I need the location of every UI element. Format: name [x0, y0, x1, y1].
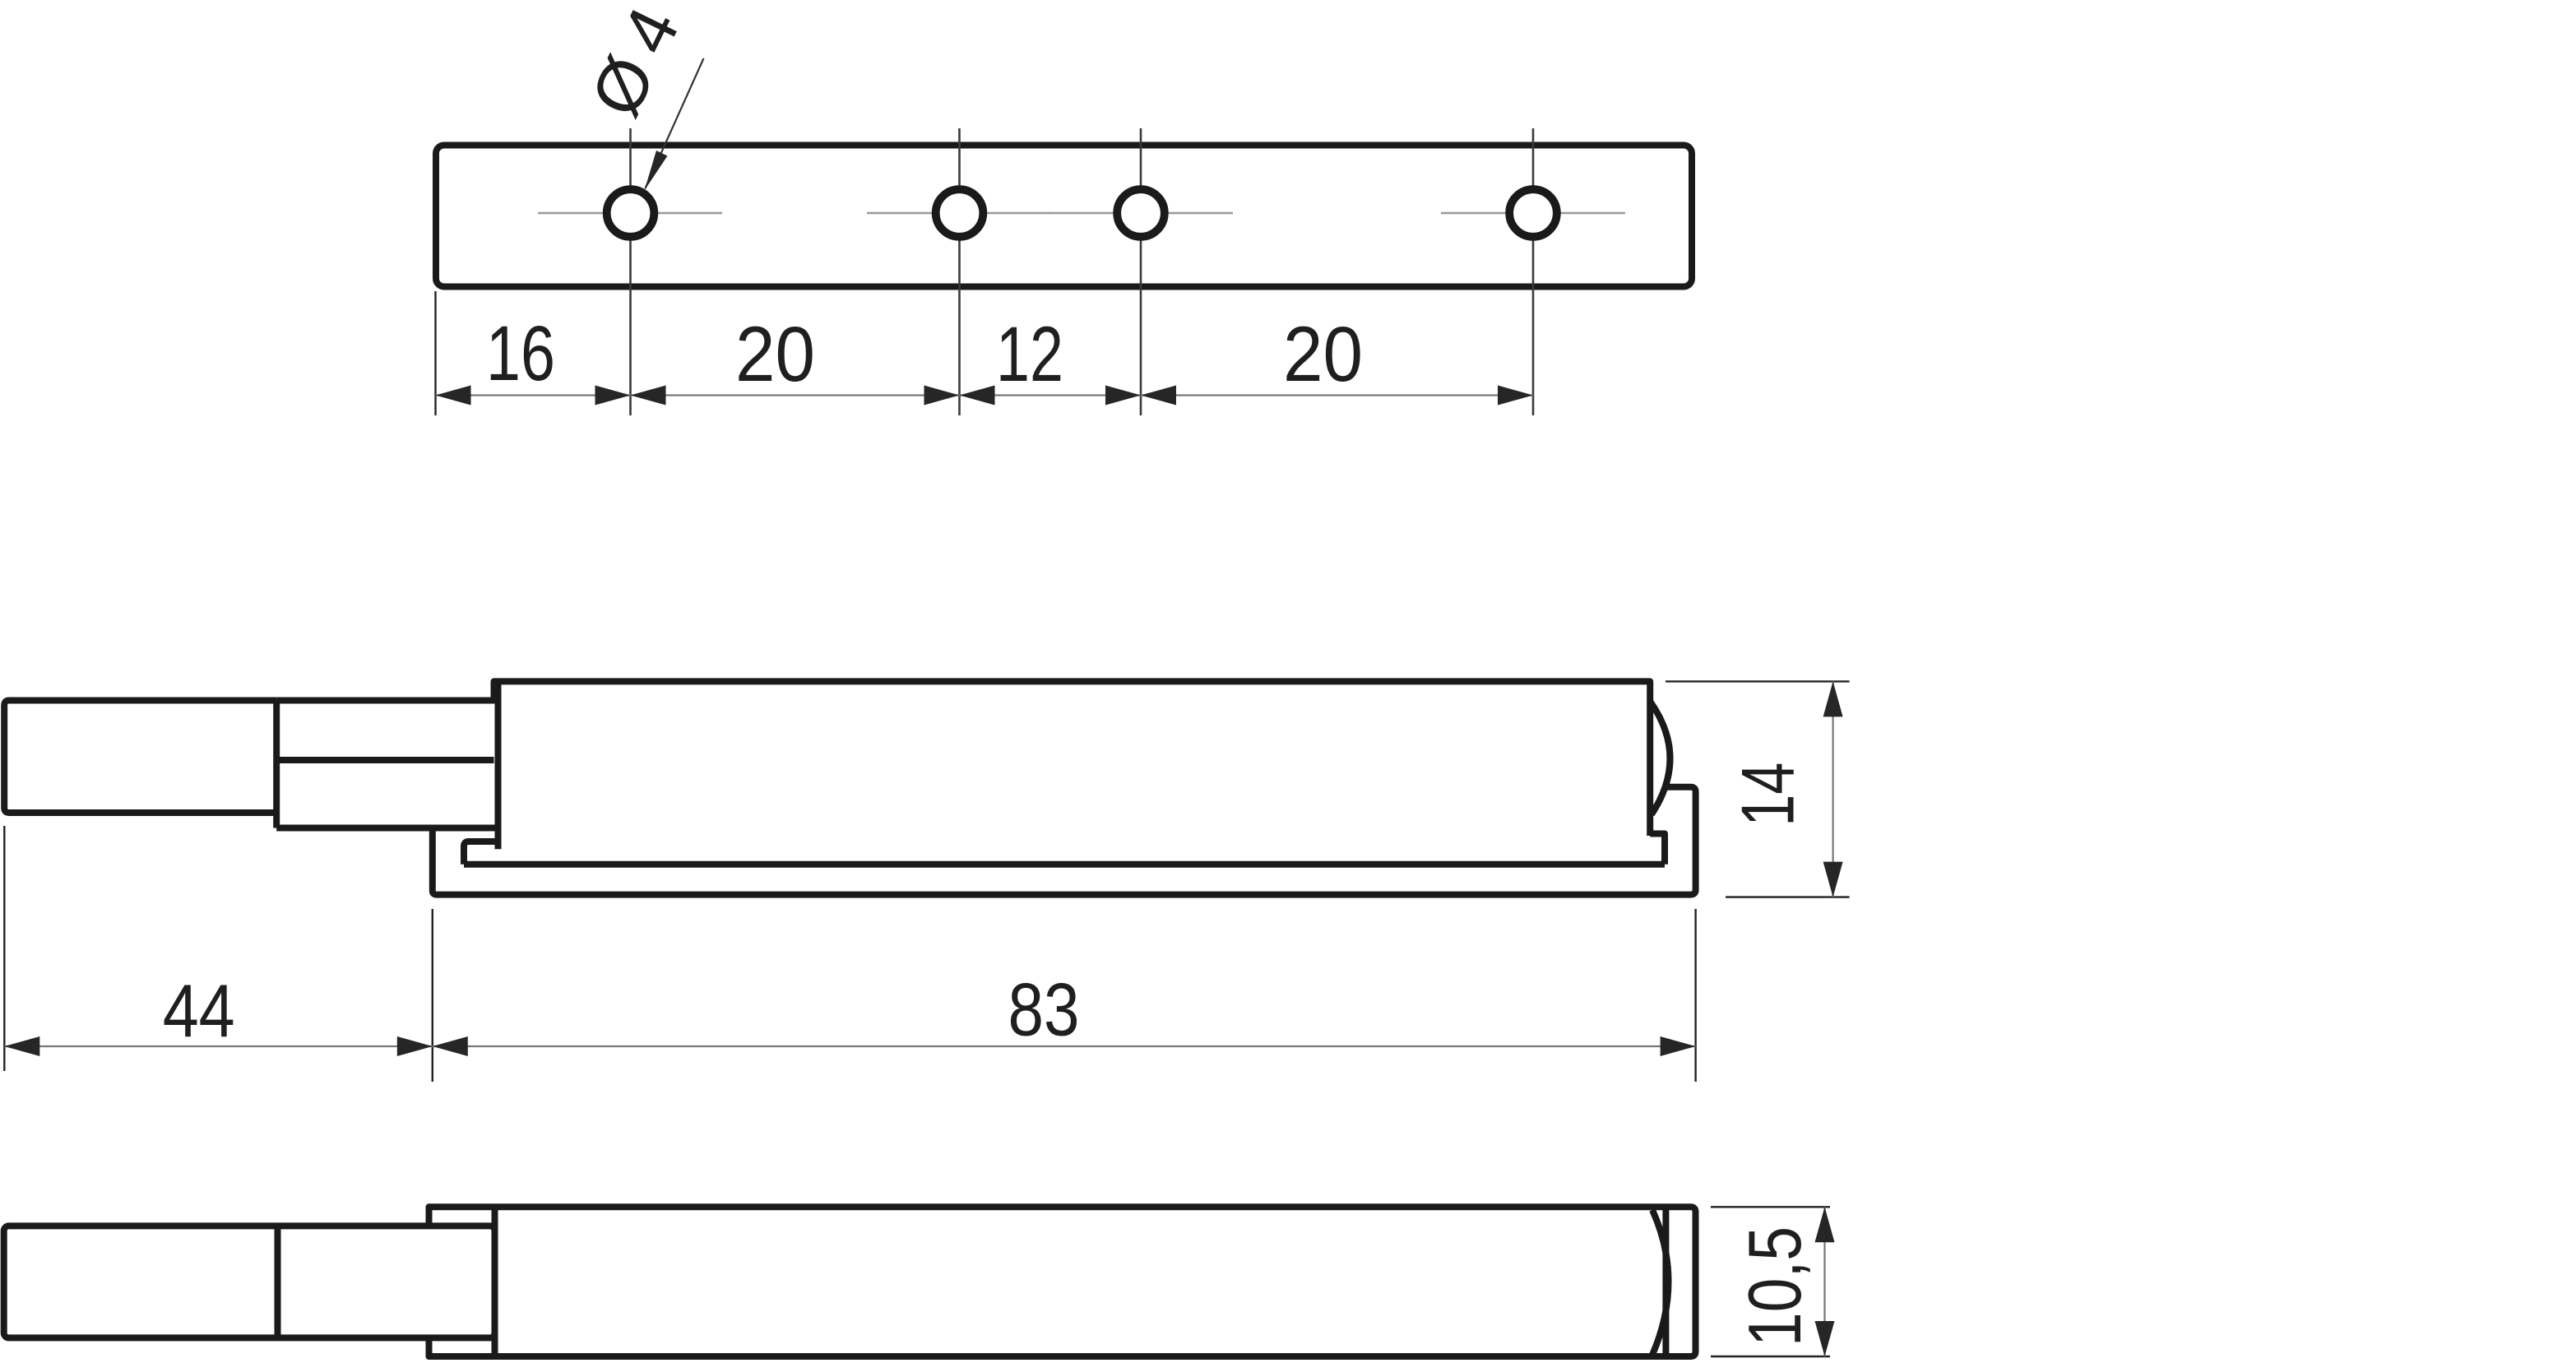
svg-text:Ø4: Ø4 [576, 0, 701, 128]
svg-text:10,5: 10,5 [1734, 1226, 1817, 1347]
svg-text:83: 83 [1008, 969, 1080, 1052]
svg-text:44: 44 [163, 970, 235, 1053]
svg-text:14: 14 [1727, 763, 1810, 827]
svg-text:16: 16 [486, 310, 555, 397]
svg-text:20: 20 [735, 311, 815, 398]
svg-text:20: 20 [1283, 311, 1363, 398]
svg-text:12: 12 [996, 311, 1063, 398]
